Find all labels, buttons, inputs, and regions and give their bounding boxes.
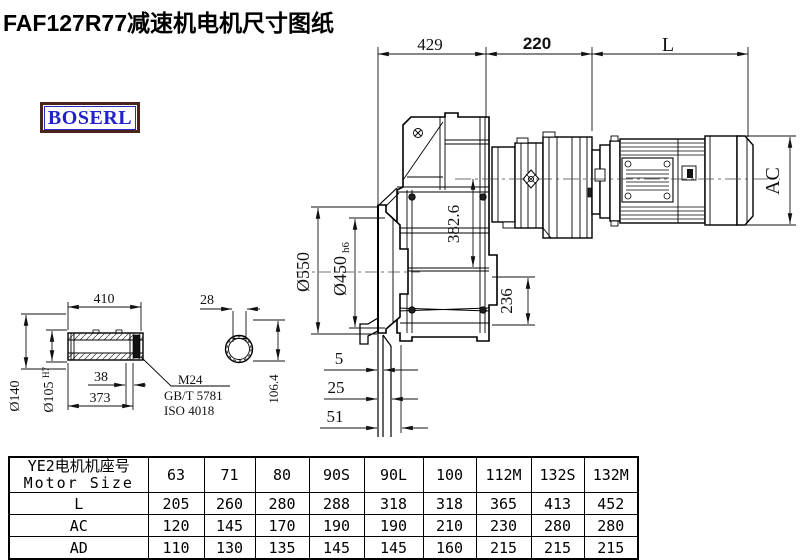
dim-450-label: Ø450 [330,256,350,296]
table-cell: 260 [204,493,255,515]
table-cell: 145 [204,515,255,537]
table-row: L 205 260 280 288 318 318 365 413 452 [9,493,638,515]
dim-28-label: 28 [200,293,214,308]
table-cell: 413 [531,493,584,515]
dim-25-label: 25 [328,378,345,397]
row-label: L [9,493,148,515]
table-header-cell: YE2电机机座号 Motor Size [9,457,148,493]
motor [592,136,753,226]
column-header: 90S [309,457,364,493]
dim-105-tolerance: H7 [41,367,51,378]
dim-429-label: 429 [417,35,443,54]
table-cell: 145 [309,537,364,560]
table-cell: 120 [148,515,204,537]
flange-tube [378,333,391,437]
column-header: 63 [148,457,204,493]
standard-gbt-callout: GB/T 5781 [164,388,223,403]
table-cell: 205 [148,493,204,515]
dim-140-label: Ø140 [8,380,23,411]
dim-1064-label: 106.4 [266,374,281,404]
table-cell: 365 [476,493,531,515]
dim-550-label: Ø550 [293,252,313,292]
table-cell: 130 [204,537,255,560]
row-label: AD [9,537,148,560]
table-header-row: YE2电机机座号 Motor Size 63 71 80 90S 90L 100… [9,457,638,493]
dim-38-label: 38 [94,370,108,385]
table-cell: 215 [476,537,531,560]
motor-size-label-cn: YE2电机机座号 [10,458,148,475]
table-cell: 280 [255,493,309,515]
table-cell: 318 [423,493,476,515]
table-cell: 318 [364,493,423,515]
dim-AC-label: AC [762,167,784,195]
column-header: 80 [255,457,309,493]
thread-callout: M24 [178,372,203,387]
table-row: AC 120 145 170 190 190 210 230 280 280 [9,515,638,537]
table-cell: 170 [255,515,309,537]
motor-size-label-en: Motor Size [10,475,148,492]
table-cell: 280 [531,515,584,537]
input-adapter [492,132,593,238]
table-cell: 160 [423,537,476,560]
column-header: 71 [204,457,255,493]
dim-382-label: 382.6 [444,205,463,243]
dim-410-label: 410 [94,292,115,307]
motor-size-table: YE2电机机座号 Motor Size 63 71 80 90S 90L 100… [8,456,639,560]
table-cell: 110 [148,537,204,560]
table-cell: 190 [364,515,423,537]
dim-373-label: 373 [90,391,111,406]
table-cell: 452 [584,493,638,515]
technical-drawing: 429 220 L AC Ø550 Ø450 h6 382.6 236 5 25… [0,0,800,455]
table-cell: 145 [364,537,423,560]
row-label: AC [9,515,148,537]
table-cell: 288 [309,493,364,515]
table-cell: 135 [255,537,309,560]
table-row: AD 110 130 135 145 145 160 215 215 215 [9,537,638,560]
drawing-sheet: FAF127R77减速机电机尺寸图纸 BOSERL [0,0,800,557]
dim-450-tolerance: h6 [340,242,352,254]
bore-section-detail [226,336,253,363]
table-cell: 210 [423,515,476,537]
dim-220-label: 220 [523,34,551,53]
dim-5-label: 5 [335,349,344,368]
table-cell: 215 [531,537,584,560]
dim-L-label: L [662,34,674,56]
dim-236-label: 236 [497,288,516,314]
table-cell: 215 [584,537,638,560]
column-header: 132M [584,457,638,493]
table-cell: 280 [584,515,638,537]
column-header: 90L [364,457,423,493]
dim-105-label: Ø105 [42,381,57,412]
dim-51-label: 51 [327,407,344,426]
hollow-shaft-detail [68,330,230,386]
column-header: 100 [423,457,476,493]
standard-iso-callout: ISO 4018 [164,403,214,418]
column-header: 112M [476,457,531,493]
table-cell: 230 [476,515,531,537]
table-cell: 190 [309,515,364,537]
column-header: 132S [531,457,584,493]
